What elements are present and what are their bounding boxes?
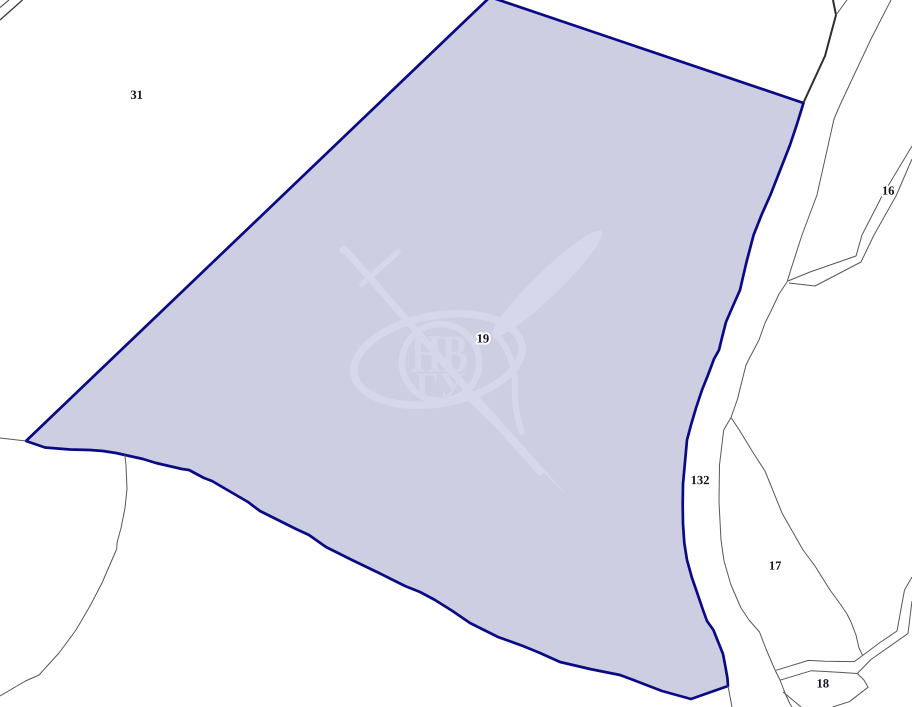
- svg-text:ГУ: ГУ: [416, 365, 466, 405]
